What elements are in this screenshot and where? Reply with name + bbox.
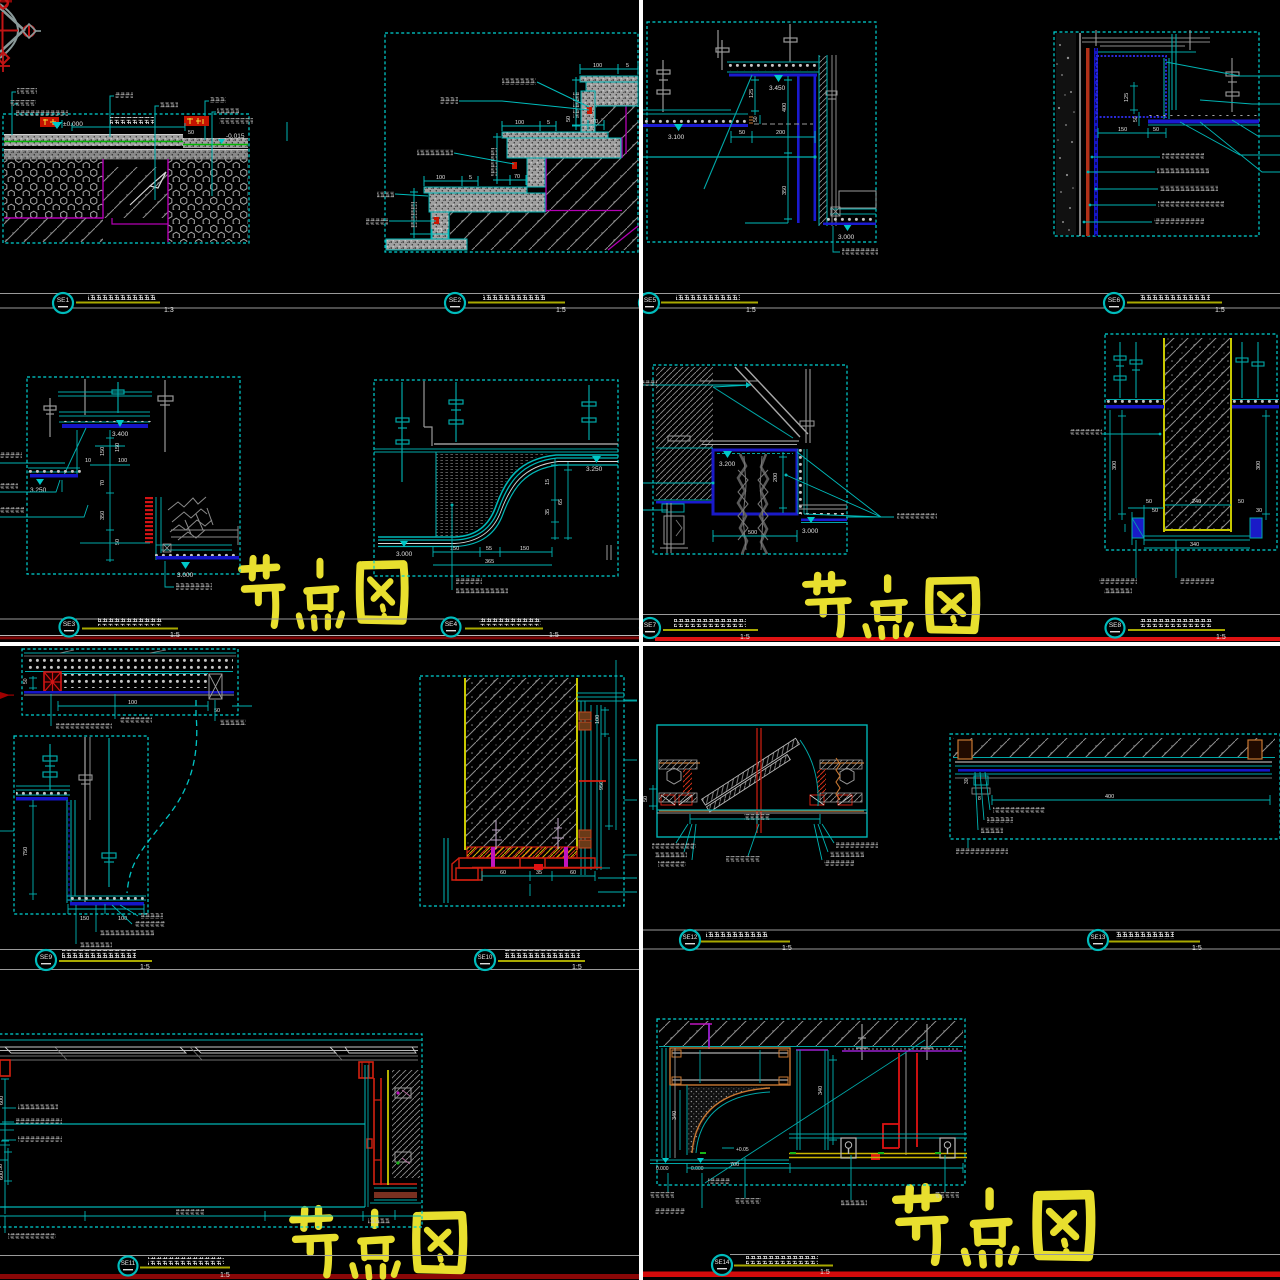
svg-text:15: 15 [545, 479, 551, 485]
svg-text:50: 50 [566, 116, 572, 122]
svg-text:1:5: 1:5 [782, 945, 792, 952]
svg-text:3.400: 3.400 [112, 431, 129, 438]
svg-text:600: 600 [0, 1171, 5, 1180]
svg-text:3.000: 3.000 [396, 551, 413, 558]
svg-text:200: 200 [773, 473, 779, 482]
svg-text:400: 400 [782, 103, 788, 112]
svg-text:35: 35 [536, 870, 542, 876]
svg-text:100: 100 [595, 715, 601, 724]
svg-text:1:5: 1:5 [140, 964, 150, 971]
svg-text:240: 240 [1192, 499, 1201, 505]
svg-text:340: 340 [818, 1086, 824, 1095]
svg-text:1:5: 1:5 [572, 964, 582, 971]
svg-text:50: 50 [1238, 499, 1244, 505]
svg-text:55: 55 [486, 546, 492, 552]
svg-text:30: 30 [964, 778, 970, 784]
svg-text:SE2: SE2 [449, 297, 462, 304]
svg-text:350: 350 [782, 186, 788, 195]
svg-text:3.200: 3.200 [719, 461, 736, 468]
svg-text:150: 150 [450, 546, 459, 552]
svg-text:1:5: 1:5 [740, 634, 750, 641]
svg-text:SE13: SE13 [1091, 935, 1106, 941]
svg-text:SE11: SE11 [121, 1261, 136, 1267]
svg-text:3.250: 3.250 [586, 466, 603, 473]
svg-text:100: 100 [515, 120, 524, 126]
svg-text:700: 700 [730, 1162, 739, 1168]
svg-text:100: 100 [128, 700, 137, 706]
svg-text:50: 50 [1146, 499, 1152, 505]
svg-text:SE14: SE14 [715, 1260, 730, 1266]
svg-text:50: 50 [188, 130, 194, 136]
svg-text:70: 70 [592, 119, 598, 125]
svg-text:SE3: SE3 [63, 621, 76, 628]
svg-text:60: 60 [570, 870, 576, 876]
svg-text:1:5: 1:5 [1192, 945, 1202, 952]
svg-text:1:5: 1:5 [170, 632, 180, 639]
svg-text:SE6: SE6 [1108, 297, 1121, 304]
svg-text:125: 125 [749, 89, 755, 98]
svg-text:60: 60 [500, 870, 506, 876]
svg-text:340: 340 [672, 1111, 678, 1120]
svg-text:70: 70 [100, 480, 106, 486]
svg-text:3.250: 3.250 [30, 487, 47, 494]
svg-text:125: 125 [1124, 93, 1130, 102]
svg-text:150: 150 [100, 447, 106, 456]
svg-text:1:5: 1:5 [556, 307, 566, 314]
svg-text:3.100: 3.100 [668, 134, 685, 141]
svg-text:50: 50 [115, 539, 121, 545]
svg-text:950: 950 [599, 781, 605, 790]
svg-text:150: 150 [80, 916, 89, 922]
svg-text:1:5: 1:5 [1216, 634, 1226, 641]
svg-text:340: 340 [1190, 542, 1199, 548]
svg-text:5: 5 [547, 120, 550, 126]
svg-text:750: 750 [23, 847, 29, 856]
svg-text:100: 100 [118, 916, 127, 922]
svg-text:SE8: SE8 [1109, 622, 1122, 629]
svg-text:65: 65 [558, 499, 564, 505]
svg-text:-0.015: -0.015 [226, 133, 245, 140]
svg-text:SE5: SE5 [644, 297, 657, 304]
svg-text:1:5: 1:5 [1215, 307, 1225, 314]
svg-text:1:3: 1:3 [164, 307, 174, 314]
svg-text:10: 10 [85, 458, 91, 464]
svg-text:SE10: SE10 [478, 955, 493, 961]
svg-text:50: 50 [1152, 508, 1158, 514]
svg-text:5: 5 [626, 63, 629, 69]
svg-text:200: 200 [776, 130, 785, 136]
svg-text:70: 70 [514, 174, 520, 180]
svg-text:5: 5 [469, 175, 472, 181]
svg-text:+0.05: +0.05 [736, 1147, 749, 1153]
svg-text:50: 50 [1153, 127, 1159, 133]
svg-text:600: 600 [0, 1096, 5, 1105]
svg-text:100: 100 [436, 175, 445, 181]
svg-text:3.000: 3.000 [177, 572, 194, 579]
svg-text:350: 350 [100, 511, 106, 520]
svg-text:300: 300 [1112, 461, 1118, 470]
svg-text:SE12: SE12 [683, 935, 698, 941]
svg-text:500: 500 [748, 530, 757, 536]
svg-text:1:5: 1:5 [820, 1269, 830, 1276]
svg-text:3.000: 3.000 [802, 528, 819, 535]
svg-text:70: 70 [436, 228, 442, 234]
svg-text:±0.000: ±0.000 [63, 121, 83, 128]
svg-text:SE1: SE1 [57, 297, 70, 304]
svg-text:1:5: 1:5 [549, 632, 559, 639]
svg-text:SE9: SE9 [40, 954, 53, 961]
svg-text:8: 8 [978, 796, 981, 802]
svg-text:100: 100 [593, 63, 602, 69]
svg-text:50: 50 [1133, 116, 1139, 122]
svg-text:50: 50 [753, 116, 759, 122]
svg-text:300: 300 [1256, 461, 1262, 470]
svg-text:SE7: SE7 [644, 622, 657, 629]
svg-text:50: 50 [739, 130, 745, 136]
svg-text:50: 50 [23, 678, 29, 684]
svg-text:1:5: 1:5 [220, 1272, 230, 1279]
svg-text:SE4: SE4 [445, 621, 458, 628]
svg-text:0.000: 0.000 [691, 1166, 704, 1172]
svg-text:50: 50 [643, 796, 649, 802]
svg-text:50: 50 [0, 1164, 4, 1170]
svg-text:150: 150 [520, 546, 529, 552]
svg-text:100: 100 [118, 458, 127, 464]
svg-text:150: 150 [115, 443, 121, 452]
svg-text:365: 365 [485, 559, 494, 565]
svg-text:1:5: 1:5 [746, 307, 756, 314]
svg-text:150: 150 [1118, 127, 1127, 133]
svg-text:0.000: 0.000 [656, 1166, 669, 1172]
svg-text:400: 400 [1105, 794, 1114, 800]
svg-text:3.450: 3.450 [769, 85, 786, 92]
svg-text:3.000: 3.000 [838, 234, 855, 241]
svg-text:30: 30 [1256, 508, 1262, 514]
svg-text:35: 35 [545, 509, 551, 515]
